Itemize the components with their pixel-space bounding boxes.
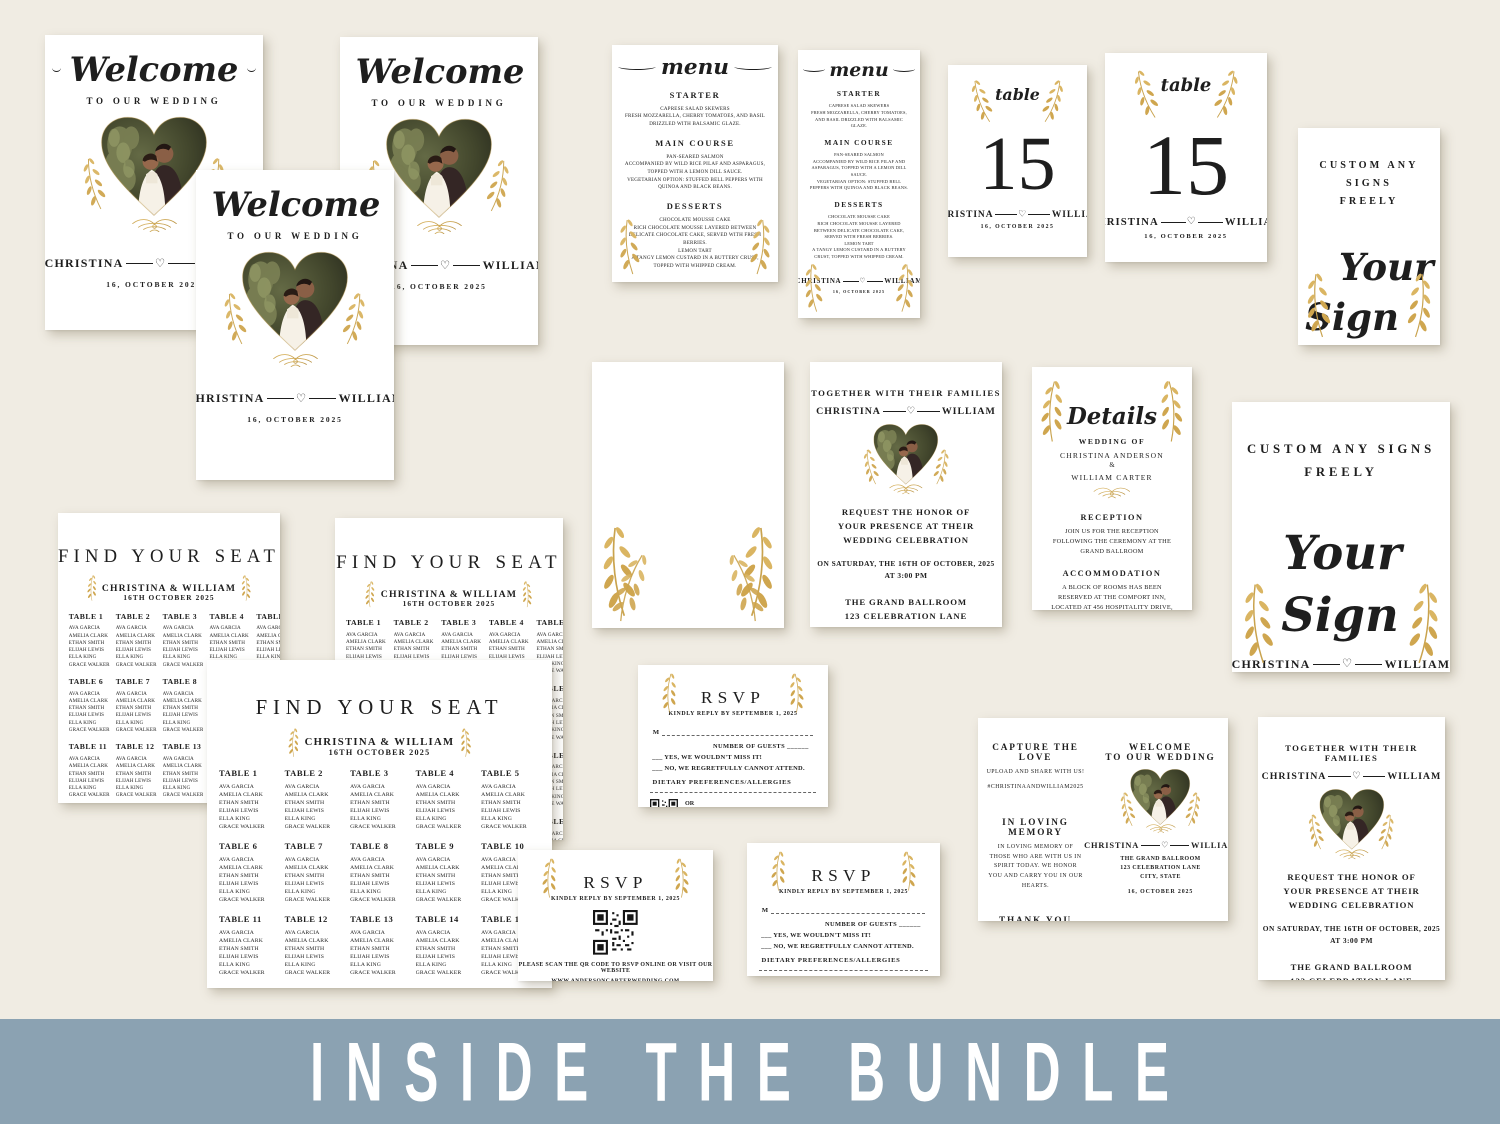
seating-guest-name: ELLA KING (163, 720, 204, 727)
seating-guest-name: ETHAN SMITH (285, 872, 344, 880)
heart-divider-icon: ♡ (1328, 771, 1385, 782)
qr-code-icon (593, 910, 638, 955)
seating-guest-name: ETHAN SMITH (394, 646, 436, 653)
seating-guest-name: ETHAN SMITH (116, 640, 157, 647)
seating-guest-name: AMELIA CLARK (163, 763, 204, 770)
seating-table-name: TABLE 1 (346, 618, 388, 627)
seating-table-block: TABLE 8AVA GARCIAAMELIA CLARKETHAN SMITH… (350, 841, 409, 905)
rsvp-yes-option: ___ YES, WE WOULDN'T MISS IT! (747, 932, 940, 939)
seating-guest-name: ELLA KING (350, 815, 409, 823)
invitation-request: REQUEST THE HONOR OF YOUR PRESENCE AT TH… (810, 506, 1002, 548)
seating-table-block: TABLE 14AVA GARCIAAMELIA CLARKETHAN SMIT… (416, 914, 475, 978)
seating-guest-name: AVA GARCIA (536, 632, 563, 639)
seating-guest-name: ELIJAH LEWIS (116, 712, 157, 719)
program-right-column: WELCOME TO OUR WEDDING CHRISTINA♡WILLIAM… (1093, 718, 1228, 921)
gold-branch-icon (1038, 377, 1067, 445)
couple-names: CHRISTINA♡WILLIAM (810, 406, 1002, 417)
heart-divider-icon: ♡ (995, 209, 1050, 220)
seating-table-name: TABLE 14 (416, 914, 475, 924)
seating-guest-name: ETHAN SMITH (285, 799, 344, 807)
seating-guest-name: ELLA KING (163, 785, 204, 792)
seating-table-name: TABLE 3 (163, 612, 204, 621)
seating-guest-name: AVA GARCIA (416, 929, 475, 937)
welcome-title: Welcome (45, 49, 263, 89)
seating-table-name: TABLE 6 (69, 677, 110, 686)
seating-guest-name: ELIJAH LEWIS (163, 647, 204, 654)
seating-guest-name: GRACE WALKER (163, 727, 204, 734)
seating-guest-name: ETHAN SMITH (219, 872, 278, 880)
seating-guest-name: GRACE WALKER (416, 823, 475, 831)
seating-table-block: TABLE 11AVA GARCIAAMELIA CLARKETHAN SMIT… (219, 914, 278, 978)
seating-table-block: TABLE 4AVA GARCIAAMELIA CLARKETHAN SMITH… (416, 768, 475, 832)
groom-full-name: WILLIAM CARTER (1032, 473, 1192, 482)
seating-guest-name: ELLA KING (219, 961, 278, 969)
bundle-banner: INSIDE THE BUNDLE (0, 1019, 1500, 1124)
seating-guest-name: ELLA KING (416, 888, 475, 896)
monogram-blank-card: C & W 16.10.2025 (592, 362, 784, 628)
seating-guest-name: ELIJAH LEWIS (481, 807, 540, 815)
table-number: 15 (1105, 122, 1267, 208)
seating-guest-name: GRACE WALKER (116, 662, 157, 669)
custom-sign-card-2: CUSTOM ANY SIGNS FREELY Your Sign CHRIST… (1232, 402, 1450, 672)
gold-branch-icon (798, 259, 828, 315)
seating-guest-name: ETHAN SMITH (219, 945, 278, 953)
seating-guest-name: AVA GARCIA (441, 632, 483, 639)
seating-guest-name: AMELIA CLARK (219, 937, 278, 945)
seating-table-block: TABLE 9AVA GARCIAAMELIA CLARKETHAN SMITH… (416, 841, 475, 905)
seating-title: FIND YOUR SEAT (335, 552, 563, 574)
rsvp-or-label: OR (685, 801, 816, 807)
seating-table-block: TABLE 12AVA GARCIAAMELIA CLARKETHAN SMIT… (285, 914, 344, 978)
seating-date: 16TH OCTOBER 2025 (207, 748, 552, 757)
seating-guest-name: ELIJAH LEWIS (350, 880, 409, 888)
seating-guest-name: GRACE WALKER (285, 823, 344, 831)
seating-guest-name: GRACE WALKER (69, 662, 110, 669)
thanks-heading: THANK YOU (986, 915, 1084, 921)
couple-photo-heart (1128, 768, 1192, 836)
seating-guest-name: ELIJAH LEWIS (116, 647, 157, 654)
menu-section-starter: STARTERCAPRESE SALAD SKEWERS FRESH MOZZA… (798, 89, 920, 130)
seating-table-block: TABLE 16AVA GARCIAAMELIA CLARKETHAN SMIT… (219, 986, 278, 988)
welcome-sign-card-3: Welcome TO OUR WEDDING CHRISTINA♡WILLIAM… (196, 170, 394, 480)
couple-names: CHRISTINA♡WILLIAM (948, 209, 1087, 220)
seating-guest-name: AMELIA CLARK (394, 639, 436, 646)
seating-couple-names: CHRISTINA & WILLIAM (305, 736, 455, 748)
seating-table-name: TABLE 4 (489, 618, 531, 627)
rsvp-scan-long-label: PLEASE SCAN THE QR CODE TO RSVP ONLINE O… (518, 962, 713, 974)
seating-guest-name: ELIJAH LEWIS (219, 880, 278, 888)
gold-leaf-icon (521, 580, 533, 608)
seating-table-block: TABLE 20AVA GARCIAAMELIA CLARKETHAN SMIT… (481, 986, 540, 988)
dashed-line (650, 792, 815, 793)
menu-section-main: MAIN COURSEPAN-SEARED SALMON ACCOMPANIED… (798, 138, 920, 192)
seating-guest-name: ETHAN SMITH (116, 705, 157, 712)
seating-guest-name: AMELIA CLARK (285, 864, 344, 872)
seating-table-name: TABLE 4 (416, 768, 475, 778)
menu-title: menu (612, 55, 778, 80)
seating-guest-name: GRACE WALKER (116, 727, 157, 734)
rsvp-no-option: ___ NO, WE REGRETFULLY CANNOT ATTEND. (638, 765, 828, 772)
gold-branch-icon (1400, 575, 1450, 669)
seating-guest-name: AVA GARCIA (163, 625, 204, 632)
invitation-request: REQUEST THE HONOR OF YOUR PRESENCE AT TH… (1258, 871, 1445, 913)
invitation-intro: TOGETHER WITH THEIR FAMILIES (810, 388, 1002, 398)
program-left-column: CAPTURE THE LOVE UPLOAD AND SHARE WITH U… (978, 718, 1093, 921)
rsvp-card-form-qr: RSVP KINDLY REPLY BY SEPTEMBER 1, 2025 M… (638, 665, 828, 807)
gold-leaf-icon (364, 580, 376, 608)
seating-guest-name: AMELIA CLARK (416, 791, 475, 799)
seating-title: FIND YOUR SEAT (207, 697, 552, 720)
seating-table-name: TABLE 5 (256, 612, 280, 621)
couple-names: CHRISTINA♡WILLIAM (196, 391, 394, 406)
menu-script-text: menu (656, 55, 735, 80)
gold-branch-icon (769, 850, 788, 891)
groom-name: WILLIAM (1191, 841, 1228, 850)
swash-line-icon (893, 68, 915, 72)
couple-photo-heart (238, 250, 352, 369)
seating-guest-name: AVA GARCIA (350, 856, 409, 864)
seating-guest-name: ELLA KING (219, 888, 278, 896)
seating-table-block: TABLE 7AVA GARCIAAMELIA CLARKETHAN SMITH… (285, 841, 344, 905)
seating-table-name: TABLE 12 (285, 914, 344, 924)
seating-guest-name: ELLA KING (285, 888, 344, 896)
seating-guest-name: AMELIA CLARK (481, 791, 540, 799)
seating-table-name: TABLE 7 (285, 841, 344, 851)
seating-guest-name: ETHAN SMITH (285, 945, 344, 953)
bride-full-name: CHRISTINA ANDERSON (1032, 451, 1192, 460)
seating-table-block: TABLE 5AVA GARCIAAMELIA CLARKETHAN SMITH… (481, 768, 540, 832)
seating-table-block: TABLE 6AVA GARCIAAMELIA CLARKETHAN SMITH… (69, 677, 110, 734)
table-label-laurel: table (948, 78, 1087, 124)
seating-guest-name: ELIJAH LEWIS (116, 778, 157, 785)
seating-guest-name: AVA GARCIA (285, 929, 344, 937)
seating-guest-name: ELIJAH LEWIS (163, 712, 204, 719)
seating-guest-name: ELIJAH LEWIS (219, 953, 278, 961)
seating-table-name: TABLE 19 (416, 986, 475, 988)
couple-names: CHRISTINA♡WILLIAM (1105, 216, 1267, 228)
seating-guest-name: ETHAN SMITH (209, 640, 250, 647)
seating-guest-name: ELLA KING (69, 654, 110, 661)
rsvp-yes-option: ___ YES, WE WOULDN'T MISS IT! (638, 754, 828, 761)
seating-guest-name: ELIJAH LEWIS (209, 647, 250, 654)
seating-guest-name: ELLA KING (116, 720, 157, 727)
seating-guest-name: AMELIA CLARK (163, 698, 204, 705)
seating-guest-name: ELLA KING (350, 961, 409, 969)
invitation-intro: TOGETHER WITH THEIR FAMILIES (1258, 743, 1445, 763)
invitation-card-2: TOGETHER WITH THEIR FAMILIES CHRISTINA♡W… (1258, 717, 1445, 980)
gold-leaf-icon (287, 727, 300, 758)
couple-names: CHRISTINA♡WILLIAM (1258, 771, 1445, 782)
qr-code-icon (650, 799, 678, 807)
gold-leaf-icon (459, 727, 472, 758)
seating-table-block: TABLE 18AVA GARCIAAMELIA CLARKETHAN SMIT… (350, 986, 409, 988)
memory-heading: IN LOVING MEMORY (986, 817, 1084, 837)
seating-couple-names: CHRISTINA & WILLIAM (102, 583, 236, 594)
welcome-title: Welcome (340, 51, 538, 91)
seating-guest-name: AMELIA CLARK (219, 791, 278, 799)
menu-title: menu (798, 59, 920, 81)
seating-guest-name: GRACE WALKER (285, 969, 344, 977)
seating-guest-name: GRACE WALKER (350, 823, 409, 831)
heart-divider-icon: ♡ (267, 392, 336, 406)
custom-sign-heading: CUSTOM ANY SIGNS FREELY (1232, 438, 1450, 484)
bride-name: CHRISTINA (816, 406, 881, 417)
seating-guest-name: GRACE WALKER (219, 969, 278, 977)
seating-table-block: TABLE 2AVA GARCIAAMELIA CLARKETHAN SMITH… (116, 612, 157, 669)
custom-sign-script-1: Your (1283, 525, 1450, 580)
table-number-card-2: table 15 CHRISTINA♡WILLIAM 16, OCTOBER 2… (1105, 53, 1267, 262)
dashed-line (759, 970, 927, 971)
seating-guest-name: GRACE WALKER (116, 792, 157, 799)
seating-guest-name: AMELIA CLARK (256, 633, 280, 640)
seating-table-name: TABLE 13 (350, 914, 409, 924)
seating-guest-name: AMELIA CLARK (69, 698, 110, 705)
rsvp-qr-row: OR SCAN THE QR CODE TO RSVP ONLINE (638, 799, 828, 807)
seating-guest-name: ELIJAH LEWIS (350, 807, 409, 815)
seating-couple-names: CHRISTINA & WILLIAM (381, 589, 517, 600)
seating-guest-name: AVA GARCIA (69, 691, 110, 698)
seating-table-name: TABLE 1 (69, 612, 110, 621)
seating-guest-name: AVA GARCIA (285, 783, 344, 791)
seating-table-block: TABLE 2AVA GARCIAAMELIA CLARKETHAN SMITH… (285, 768, 344, 832)
gold-flourish-icon (414, 219, 465, 237)
seating-table-grid: TABLE 1AVA GARCIAAMELIA CLARKETHAN SMITH… (207, 757, 552, 988)
seating-guest-name: ELIJAH LEWIS (219, 807, 278, 815)
welcome-subtitle: TO OUR WEDDING (340, 98, 538, 108)
invitation-venue: THE GRAND BALLROOM 123 CELEBRATION LANE … (1258, 960, 1445, 980)
seating-guest-name: ETHAN SMITH (163, 771, 204, 778)
swash-line-icon (618, 66, 656, 70)
seating-guest-name: AMELIA CLARK (209, 633, 250, 640)
seating-table-name: TABLE 18 (350, 986, 409, 988)
seating-guest-name: AVA GARCIA (346, 632, 388, 639)
seating-guest-name: GRACE WALKER (350, 969, 409, 977)
seating-guest-name: AMELIA CLARK (346, 639, 388, 646)
bride-name: CHRISTINA (1262, 771, 1327, 782)
seating-guest-name: AMELIA CLARK (116, 763, 157, 770)
seating-guest-name: AVA GARCIA (219, 856, 278, 864)
seating-table-name: TABLE 13 (163, 742, 204, 751)
accommodation-heading: ACCOMMODATION (1032, 569, 1192, 578)
seating-guest-name: AVA GARCIA (350, 929, 409, 937)
seating-guest-name: AVA GARCIA (163, 691, 204, 698)
seating-guest-name: GRACE WALKER (219, 823, 278, 831)
couple-names: CHRISTINA♡WILLIAM (1101, 841, 1219, 850)
seating-guest-name: ETHAN SMITH (416, 945, 475, 953)
seating-guest-name: ETHAN SMITH (116, 771, 157, 778)
seating-table-name: TABLE 4 (209, 612, 250, 621)
seating-table-name: TABLE 11 (69, 742, 110, 751)
welcome-subtitle: TO OUR WEDDING (45, 96, 263, 106)
seating-table-name: TABLE 11 (219, 914, 278, 924)
seating-guest-name: ELIJAH LEWIS (416, 880, 475, 888)
bride-name: CHRISTINA (196, 391, 264, 406)
seating-guest-name: ETHAN SMITH (350, 872, 409, 880)
seating-guest-name: ETHAN SMITH (489, 646, 531, 653)
seating-guest-name: ETHAN SMITH (163, 640, 204, 647)
seating-guest-name: GRACE WALKER (69, 727, 110, 734)
rsvp-name-line: M (653, 729, 813, 736)
seating-table-name: TABLE 8 (350, 841, 409, 851)
rsvp-name-line: M (762, 907, 925, 914)
custom-sign-heading: CUSTOM ANY SIGNS FREELY (1298, 157, 1440, 212)
seating-guest-name: ELIJAH LEWIS (285, 953, 344, 961)
seating-table-name: TABLE 2 (116, 612, 157, 621)
seating-guest-name: ELIJAH LEWIS (350, 953, 409, 961)
wedding-date: 16, OCTOBER 2025 (196, 415, 394, 424)
seating-title: FIND YOUR SEAT (58, 546, 280, 568)
seating-guest-name: ELLA KING (350, 888, 409, 896)
seating-guest-name: ETHAN SMITH (416, 872, 475, 880)
gold-flourish-icon (887, 483, 925, 496)
seating-guest-name: ETHAN SMITH (163, 705, 204, 712)
gold-branch-icon (1206, 66, 1247, 123)
seating-guest-name: ELIJAH LEWIS (285, 807, 344, 815)
seating-table-name: TABLE 17 (285, 986, 344, 988)
seating-table-name: TABLE 1 (219, 768, 278, 778)
program-welcome-heading: WELCOME TO OUR WEDDING (1101, 742, 1219, 762)
groom-name: WILLIAM (1387, 771, 1441, 782)
seating-guest-name: AVA GARCIA (256, 625, 280, 632)
rsvp-guests-line: NUMBER OF GUESTS ______ (747, 921, 940, 928)
seating-table-name: TABLE 5 (536, 618, 563, 627)
groom-name: WILLIAM (339, 391, 394, 406)
seating-guest-name: ETHAN SMITH (481, 799, 540, 807)
seating-guest-name: AVA GARCIA (209, 625, 250, 632)
heart-divider-icon: ♡ (843, 277, 883, 285)
menu-section-desserts: DESSERTSCHOCOLATE MOUSSE CAKE RICH CHOCO… (798, 200, 920, 261)
bundle-banner-label: INSIDE THE BUNDLE (310, 1023, 1190, 1119)
seating-guest-name: ELIJAH LEWIS (69, 712, 110, 719)
seating-table-block: TABLE 19AVA GARCIAAMELIA CLARKETHAN SMIT… (416, 986, 475, 988)
seating-guest-name: AMELIA CLARK (536, 639, 563, 646)
couple-photo-heart (382, 117, 496, 236)
seating-guest-name: ETHAN SMITH (69, 705, 110, 712)
seating-guest-name: ELLA KING (285, 961, 344, 969)
seating-guest-name: ETHAN SMITH (536, 646, 563, 653)
seating-table-name: TABLE 16 (219, 986, 278, 988)
seating-guest-name: ETHAN SMITH (346, 646, 388, 653)
seating-guest-name: AVA GARCIA (350, 783, 409, 791)
seating-table-block: TABLE 1AVA GARCIAAMELIA CLARKETHAN SMITH… (69, 612, 110, 669)
seating-guest-name: ELLA KING (416, 815, 475, 823)
seating-guest-name: ETHAN SMITH (441, 646, 483, 653)
seating-guest-name: AMELIA CLARK (219, 864, 278, 872)
seating-guest-name: AMELIA CLARK (116, 698, 157, 705)
seating-guest-name: AVA GARCIA (116, 625, 157, 632)
seating-table-block: TABLE 12AVA GARCIAAMELIA CLARKETHAN SMIT… (116, 742, 157, 799)
seating-guest-name: AMELIA CLARK (350, 864, 409, 872)
seating-guest-name: ETHAN SMITH (69, 771, 110, 778)
groom-name: WILLIAM (1052, 210, 1087, 220)
seating-table-block: TABLE 8AVA GARCIAAMELIA CLARKETHAN SMITH… (163, 677, 204, 734)
seating-guest-name: ELLA KING (416, 961, 475, 969)
seating-guest-name: ELIJAH LEWIS (163, 778, 204, 785)
table-number: 15 (948, 126, 1087, 202)
custom-sign-card-1: CUSTOM ANY SIGNS FREELY Your Sign CHRIST… (1298, 128, 1440, 345)
seating-guest-name: ETHAN SMITH (350, 799, 409, 807)
program-venue: THE GRAND BALLROOM 123 CELEBRATION LANE … (1101, 855, 1219, 882)
gold-leaf-icon (86, 574, 98, 602)
seating-guest-name: ETHAN SMITH (219, 799, 278, 807)
seating-guest-name: ETHAN SMITH (256, 640, 280, 647)
welcome-script-text: Welcome (203, 184, 389, 224)
welcome-script-text: Welcome (347, 51, 533, 91)
seating-guest-name: AMELIA CLARK (416, 864, 475, 872)
seating-table-name: TABLE 3 (350, 768, 409, 778)
welcome-script-text: Welcome (61, 49, 247, 89)
gold-flourish-icon (1333, 848, 1371, 861)
table-label: table (995, 85, 1040, 104)
heart-divider-icon: ♡ (411, 259, 480, 273)
swash-line-icon (247, 67, 256, 72)
seating-table-block: TABLE 6AVA GARCIAAMELIA CLARKETHAN SMITH… (219, 841, 278, 905)
gold-branch-icon (540, 857, 559, 898)
seating-table-name: TABLE 2 (285, 768, 344, 778)
seating-guest-name: ELLA KING (116, 654, 157, 661)
gold-branch-icon (1157, 377, 1186, 445)
heart-divider-icon: ♡ (1161, 217, 1223, 228)
seating-guest-name: GRACE WALKER (69, 792, 110, 799)
seating-table-name: TABLE 12 (116, 742, 157, 751)
seating-guest-name: AVA GARCIA (416, 783, 475, 791)
seating-table-block: TABLE 3AVA GARCIAAMELIA CLARKETHAN SMITH… (163, 612, 204, 669)
wedding-date: 16, OCTOBER 2025 (948, 224, 1087, 230)
seating-table-name: TABLE 8 (163, 677, 204, 686)
seating-guest-name: AMELIA CLARK (350, 937, 409, 945)
seating-guest-name: AVA GARCIA (116, 756, 157, 763)
seating-guest-name: AMELIA CLARK (116, 633, 157, 640)
seating-table-block: TABLE 7AVA GARCIAAMELIA CLARKETHAN SMITH… (116, 677, 157, 734)
seating-guest-name: AMELIA CLARK (163, 633, 204, 640)
rsvp-no-option: ___ NO, WE REGRETFULLY CANNOT ATTEND. (747, 943, 940, 950)
bride-name: CHRISTINA (1084, 841, 1139, 850)
dashed-line (662, 729, 813, 736)
invitation-datetime: ON SATURDAY, THE 16TH OF OCTOBER, 2025 A… (810, 558, 1002, 582)
seating-guest-name: ELIJAH LEWIS (69, 778, 110, 785)
swash-line-icon (52, 67, 61, 72)
gold-flourish-icon (1091, 486, 1133, 501)
heart-divider-icon: ♡ (883, 406, 940, 417)
seating-table-block: TABLE 13AVA GARCIAAMELIA CLARKETHAN SMIT… (350, 914, 409, 978)
details-card: Details WEDDING OF CHRISTINA ANDERSON & … (1032, 367, 1192, 610)
accommodation-body: A BLOCK OF ROOMS HAS BEEN RESERVED AT TH… (1032, 583, 1192, 610)
seating-table-name: TABLE 6 (219, 841, 278, 851)
groom-name: WILLIAM (1225, 216, 1267, 228)
seating-guest-name: AVA GARCIA (285, 856, 344, 864)
seating-guest-name: GRACE WALKER (350, 896, 409, 904)
welcome-title: Welcome (196, 184, 394, 224)
menu-section-main: MAIN COURSEPAN-SEARED SALMON ACCOMPANIED… (612, 138, 778, 192)
heart-divider-icon: ♡ (1141, 841, 1190, 850)
bundle-mockup-stage: Welcome TO OUR WEDDING CHRISTINA♡WILLIAM… (0, 0, 1500, 1124)
rsvp-dietary-label: DIETARY PREFERENCES/ALLERGIES (638, 779, 828, 786)
seating-table-block: TABLE 3AVA GARCIAAMELIA CLARKETHAN SMITH… (350, 768, 409, 832)
couple-photo-heart (871, 423, 941, 497)
seating-guest-name: AMELIA CLARK (350, 791, 409, 799)
rsvp-dietary-label: DIETARY PREFERENCES/ALLERGIES (747, 957, 940, 964)
seating-guest-name: ETHAN SMITH (350, 945, 409, 953)
groom-name: WILLIAM (483, 258, 538, 273)
seating-guest-name: AVA GARCIA (481, 783, 540, 791)
seating-guest-name: ELLA KING (116, 785, 157, 792)
gold-branch-icon (787, 672, 806, 713)
rsvp-card-qr-only: RSVP KINDLY REPLY BY SEPTEMBER 1, 2025 P… (518, 850, 713, 981)
seating-guest-name: ELIJAH LEWIS (285, 880, 344, 888)
seating-guest-name: GRACE WALKER (416, 896, 475, 904)
seating-guest-name: AMELIA CLARK (69, 763, 110, 770)
reception-heading: RECEPTION (1032, 513, 1192, 522)
